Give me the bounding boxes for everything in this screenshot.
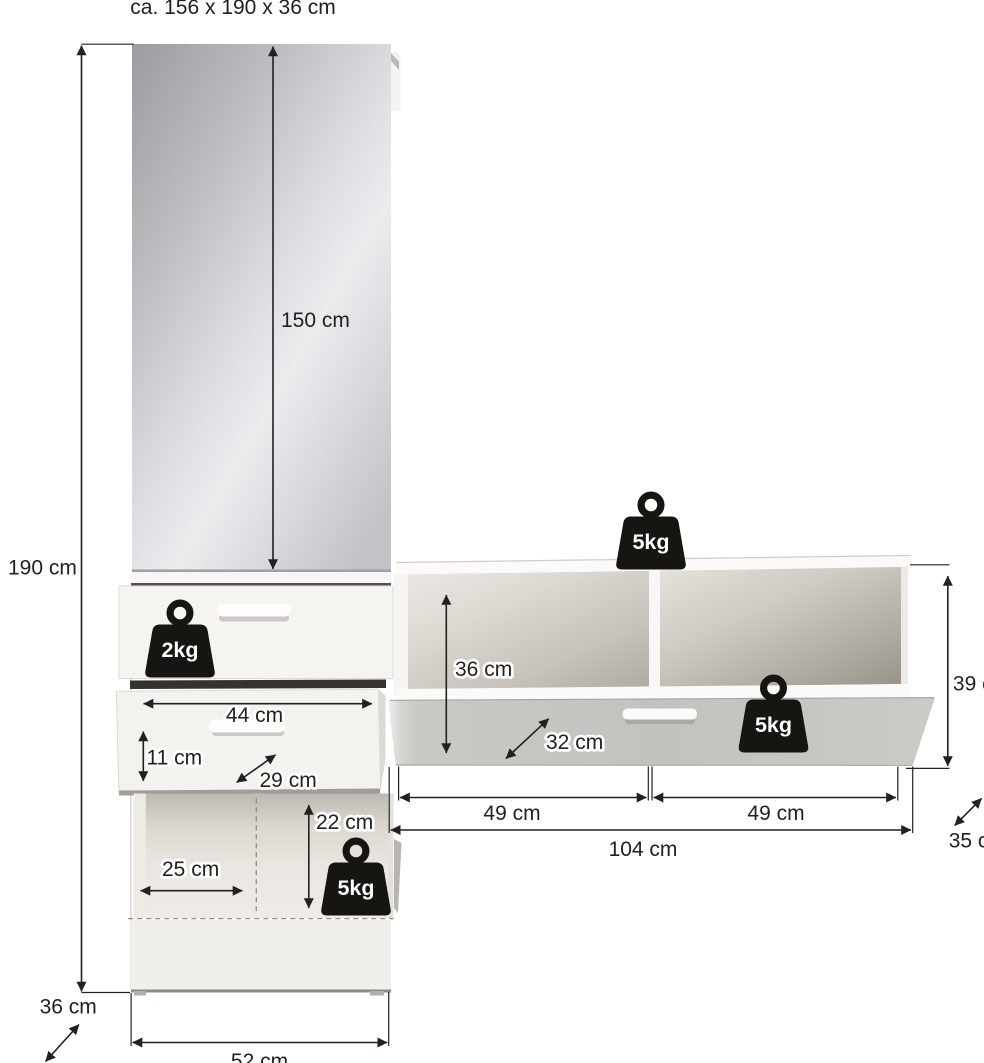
svg-text:104 cm: 104 cm bbox=[609, 838, 678, 861]
svg-text:32 cm: 32 cm bbox=[546, 731, 603, 754]
svg-text:150 cm: 150 cm bbox=[281, 309, 350, 332]
svg-text:36 cm: 36 cm bbox=[455, 658, 512, 681]
svg-text:44 cm: 44 cm bbox=[226, 704, 283, 727]
svg-text:11 cm: 11 cm bbox=[147, 746, 203, 769]
svg-text:36 cm: 36 cm bbox=[40, 996, 97, 1019]
svg-text:39 cm: 39 cm bbox=[953, 673, 984, 696]
svg-text:5kg: 5kg bbox=[337, 876, 374, 900]
svg-text:25 cm: 25 cm bbox=[162, 858, 219, 881]
svg-text:22 cm: 22 cm bbox=[316, 811, 373, 834]
svg-text:2kg: 2kg bbox=[161, 638, 198, 662]
svg-text:49 cm: 49 cm bbox=[483, 802, 540, 825]
svg-text:190 cm: 190 cm bbox=[8, 557, 77, 580]
svg-text:35 cm: 35 cm bbox=[949, 830, 984, 853]
svg-text:52 cm: 52 cm bbox=[231, 1050, 288, 1063]
svg-text:5kg: 5kg bbox=[632, 530, 669, 554]
svg-text:29 cm: 29 cm bbox=[260, 769, 317, 792]
svg-text:5kg: 5kg bbox=[755, 713, 792, 737]
svg-text:ca. 156 x 190 x 36 cm: ca. 156 x 190 x 36 cm bbox=[130, 0, 335, 19]
svg-text:49 cm: 49 cm bbox=[747, 802, 804, 825]
